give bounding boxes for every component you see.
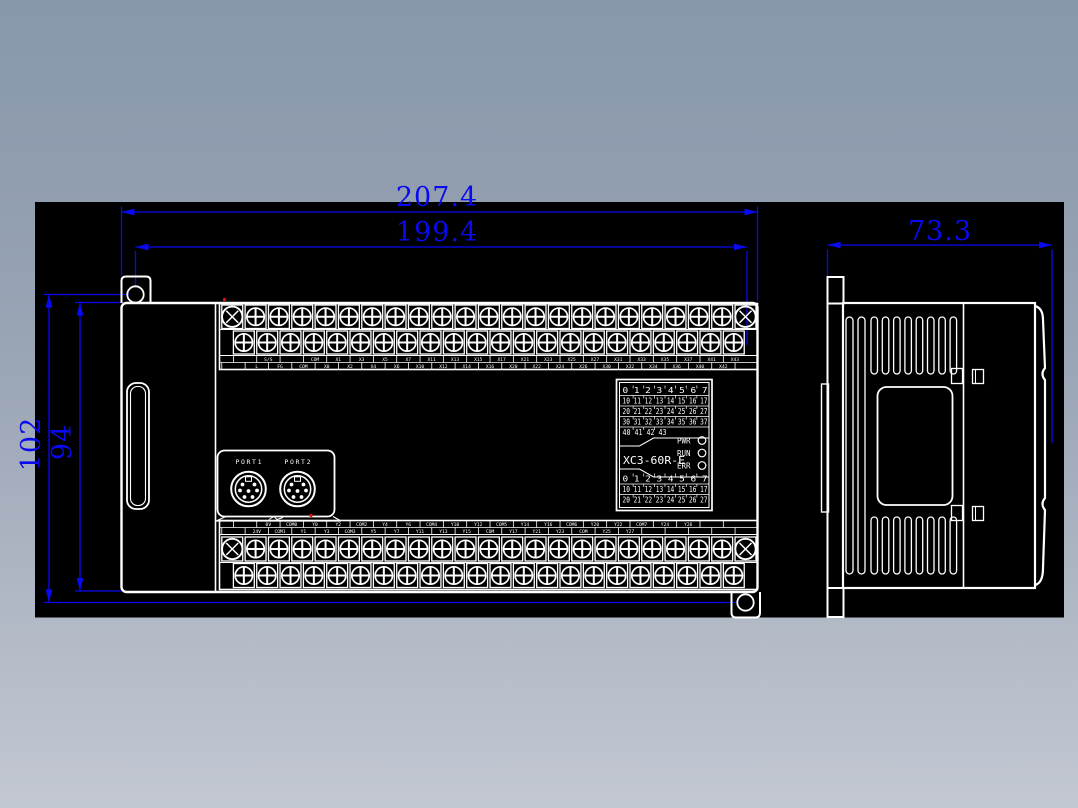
terminal-label: Y10	[451, 522, 460, 528]
led-err-label: ERR	[677, 462, 691, 471]
terminal-label: X10	[416, 364, 425, 370]
terminal-label: Y17	[509, 529, 518, 535]
terminal-label: Y2	[336, 522, 342, 528]
terminal-label: X11	[427, 357, 436, 363]
dim-width-total-text: 207.4	[396, 182, 478, 213]
terminal-label: X36	[673, 364, 682, 370]
terminal-label: X1	[336, 357, 342, 363]
din-pin	[253, 483, 257, 487]
terminal-label: Y6	[406, 522, 412, 528]
din-pin	[300, 495, 304, 499]
terminal-label: X14	[463, 364, 472, 370]
port2-label: PORT2	[285, 458, 311, 466]
terminal-label: Y0	[312, 522, 318, 528]
terminal-label: X3	[359, 357, 365, 363]
terminal-label: Y16	[544, 522, 553, 528]
terminal-label: Y4	[382, 522, 388, 528]
drawing-canvas	[35, 202, 1064, 618]
terminal-label: X35	[661, 357, 670, 363]
terminal-label: X33	[637, 357, 646, 363]
cad-marker-dot	[309, 514, 312, 517]
terminal-label: X13	[451, 357, 460, 363]
input-grid-row: 40 41 42 43	[623, 428, 667, 437]
terminal-label: L	[255, 364, 258, 370]
din-pin	[290, 483, 294, 487]
din-pin	[292, 495, 296, 499]
port1-label: PORT1	[236, 458, 262, 466]
terminal-label: X6	[394, 364, 400, 370]
terminal-label: COM3	[345, 529, 356, 535]
terminal-label: X17	[497, 357, 506, 363]
terminal-label: X30	[603, 364, 612, 370]
terminal-label: Y1	[301, 529, 307, 535]
terminal-label: Y7	[394, 529, 400, 535]
dim-side-depth-text: 73.3	[908, 216, 972, 247]
din-pin	[251, 495, 255, 499]
terminal-label: X31	[614, 357, 623, 363]
terminal-label: S/S	[264, 357, 273, 363]
terminal-label: COM	[579, 529, 588, 535]
terminal-label: X34	[649, 364, 658, 370]
terminal-label: X32	[626, 364, 635, 370]
terminal-label: COM0	[286, 522, 297, 528]
terminal-label: X42	[719, 364, 728, 370]
terminal-label: X16	[486, 364, 495, 370]
terminal-label: X40	[696, 364, 705, 370]
terminal-label: Y25	[603, 529, 612, 535]
terminal-label: X24	[556, 364, 565, 370]
din-pin	[241, 483, 245, 487]
terminal-label: 24V	[253, 529, 262, 535]
din-pin	[304, 489, 308, 493]
terminal-label: Y24	[661, 522, 670, 528]
terminal-label: Y22	[614, 522, 623, 528]
din-pin	[255, 489, 259, 493]
terminal-label: X5	[382, 357, 388, 363]
led-run-label: RUN	[677, 449, 691, 458]
page: 207.4 199.4 73.3 102 94 PORT1 PORT2	[0, 0, 1078, 808]
terminal-label: X7	[406, 357, 412, 363]
terminal-label: Y11	[416, 529, 425, 535]
terminal-label: COM7	[636, 522, 647, 528]
din-pin	[243, 495, 247, 499]
terminal-label: Y13	[439, 529, 448, 535]
din-pin	[302, 483, 306, 487]
dim-width-holes-text: 199.4	[396, 217, 478, 248]
terminal-label: X27	[591, 357, 600, 363]
terminal-label: Y27	[626, 529, 635, 535]
terminal-label: X37	[684, 357, 693, 363]
terminal-label: X41	[707, 357, 716, 363]
terminal-label: X2	[347, 364, 353, 370]
terminal-label: Y26	[684, 522, 693, 528]
terminal-label: Y5	[371, 529, 377, 535]
model-label: XC3-60R-E	[623, 455, 685, 467]
terminal-label: COM1	[275, 529, 286, 535]
terminal-label: Y21	[533, 529, 542, 535]
din-pin	[296, 489, 300, 493]
terminal-label: FG	[277, 364, 283, 370]
terminal-label: COM	[299, 364, 308, 370]
cad-marker-dot	[223, 298, 226, 301]
terminal-label: X43	[731, 357, 740, 363]
cad-drawing: 207.4 199.4 73.3 102 94 PORT1 PORT2	[0, 0, 1078, 808]
terminal-label: Y12	[474, 522, 483, 528]
terminal-label: Y3	[324, 529, 330, 535]
terminal-label: X26	[579, 364, 588, 370]
terminal-label: Y15	[463, 529, 472, 535]
terminal-label: COM	[311, 357, 320, 363]
terminal-label: X21	[521, 357, 530, 363]
din-pin	[287, 489, 291, 493]
terminal-label: COM	[486, 529, 495, 535]
terminal-label: 0V	[266, 522, 272, 528]
terminal-label: X12	[439, 364, 448, 370]
din-pin	[247, 489, 251, 493]
terminal-label: Y20	[591, 522, 600, 528]
terminal-label: Y23	[556, 529, 565, 535]
terminal-label: COM5	[496, 522, 507, 528]
dim-height-body-text: 94	[47, 424, 78, 460]
terminal-label: COM6	[566, 522, 577, 528]
terminal-label: COM4	[426, 522, 437, 528]
terminal-label: X4	[371, 364, 377, 370]
terminal-label: X22	[533, 364, 542, 370]
terminal-label: X15	[474, 357, 483, 363]
led-pwr-label: PWR	[677, 437, 691, 446]
terminal-label: X25	[567, 357, 576, 363]
terminal-label: X20	[509, 364, 518, 370]
terminal-label: COM2	[356, 522, 367, 528]
terminal-label: X23	[544, 357, 553, 363]
din-pin	[238, 489, 242, 493]
terminal-label: X0	[324, 364, 330, 370]
dim-height-total-text: 102	[16, 417, 47, 472]
terminal-label: Y14	[521, 522, 530, 528]
